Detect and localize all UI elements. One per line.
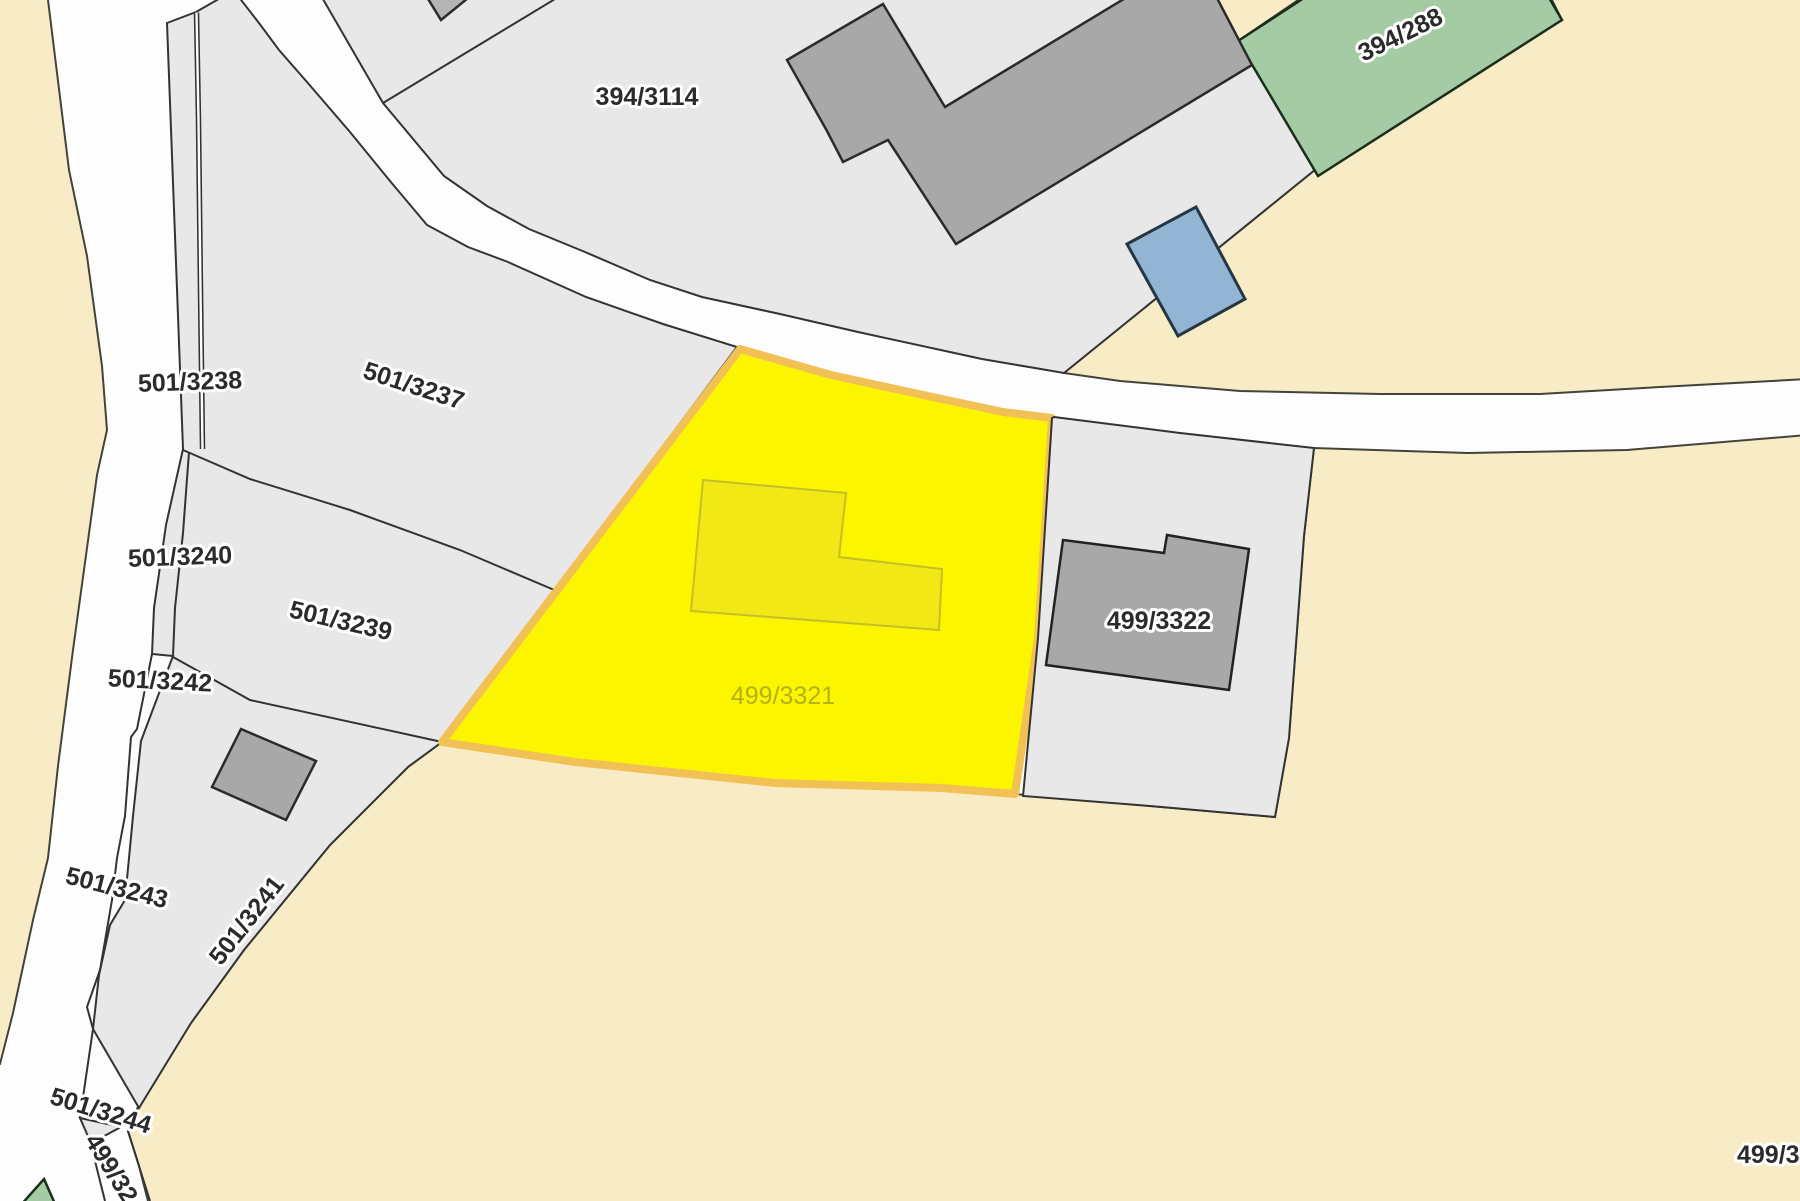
svg-text:501/3240: 501/3240 — [127, 541, 232, 573]
svg-text:501/3242: 501/3242 — [107, 664, 213, 697]
svg-text:394/3114: 394/3114 — [596, 83, 699, 111]
svg-text:499/3322: 499/3322 — [1107, 607, 1211, 635]
svg-text:499/3321: 499/3321 — [731, 682, 835, 710]
svg-text:499/34: 499/34 — [1737, 1141, 1800, 1169]
svg-text:501/3238: 501/3238 — [137, 366, 242, 398]
